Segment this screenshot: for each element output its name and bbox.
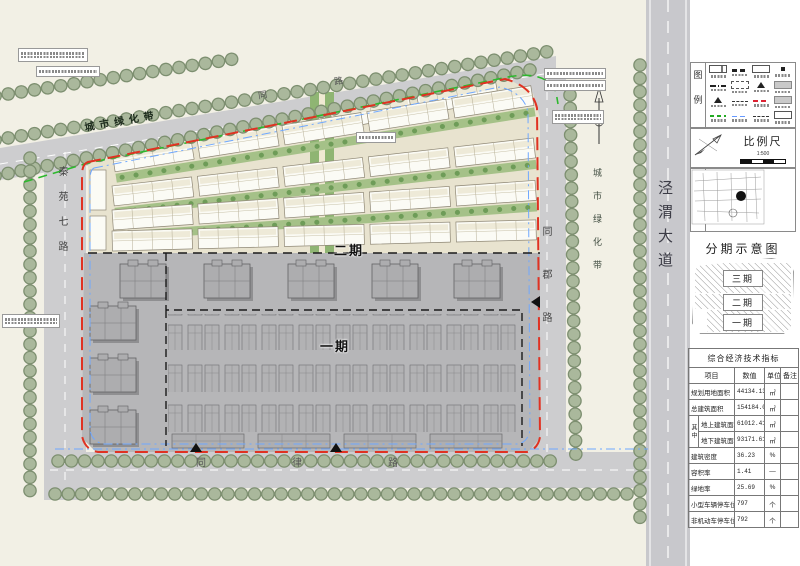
legend-symbol-outline-rect bbox=[751, 65, 772, 79]
table-row: 建筑密度 36.23 % bbox=[689, 448, 799, 464]
row-item: 绿地率 bbox=[689, 480, 735, 496]
group-label: 其中 bbox=[689, 416, 699, 448]
legend-symbol-dash-line2 bbox=[751, 111, 772, 125]
phasing-diagram: 三期 二期 一期 bbox=[692, 258, 794, 334]
annotation-note bbox=[544, 68, 606, 79]
jingwei-avenue-label: 泾渭大道 bbox=[656, 180, 671, 276]
row-item: 非机动车停车位 bbox=[689, 512, 735, 528]
scale-box: 比例尺 1:500 bbox=[690, 128, 796, 168]
legend-symbol-gate bbox=[708, 65, 729, 79]
indicators-table-wrap: 综合经济技术指标 项目 数值 单位 备注 规划用地面积 44134.13 ㎡ 总… bbox=[688, 348, 798, 528]
table-row: 其中 地上建筑面积 61012.41 ㎡ bbox=[689, 416, 799, 432]
row-value: 1.41 bbox=[735, 464, 765, 480]
col-header-value: 数值 bbox=[735, 368, 765, 384]
road-top-label-char2: 路 bbox=[333, 73, 344, 87]
row-note bbox=[781, 432, 799, 448]
row-item: 地上建筑面积 bbox=[699, 416, 735, 432]
row-item: 总建筑面积 bbox=[689, 400, 735, 416]
site-plan-page: 城市绿化带 同 路 秦苑七路 同郡路 同律路 城市绿化带 泾渭大道 二期 一期 … bbox=[0, 0, 800, 566]
row-value: 44134.13 bbox=[735, 384, 765, 400]
row-unit: ㎡ bbox=[765, 384, 781, 400]
indicators-table: 综合经济技术指标 项目 数值 单位 备注 规划用地面积 44134.13 ㎡ 总… bbox=[688, 348, 799, 528]
table-row: 容积率 1.41 — bbox=[689, 464, 799, 480]
row-note bbox=[781, 480, 799, 496]
phase1-label: 一期 bbox=[723, 314, 763, 331]
phase3-label: 三期 bbox=[723, 270, 763, 287]
legend-symbol-dot bbox=[773, 65, 794, 79]
row-unit: % bbox=[765, 448, 781, 464]
row-note bbox=[781, 464, 799, 480]
row-item: 建筑密度 bbox=[689, 448, 735, 464]
row-note bbox=[781, 416, 799, 432]
legend-symbol-entrance-triangle2 bbox=[708, 96, 729, 110]
table-row: 绿地率 25.69 % bbox=[689, 480, 799, 496]
row-unit: 个 bbox=[765, 512, 781, 528]
table-title: 综合经济技术指标 bbox=[689, 349, 799, 368]
row-unit: % bbox=[765, 480, 781, 496]
table-row: 非机动车停车位 792 个 bbox=[689, 512, 799, 528]
legend-box: 图例 bbox=[690, 62, 796, 128]
annotation-note bbox=[18, 48, 88, 62]
row-unit: ㎡ bbox=[765, 400, 781, 416]
road-right-label: 同郡路 bbox=[540, 226, 550, 355]
site-location-marker bbox=[736, 191, 746, 201]
row-value: 797 bbox=[735, 496, 765, 512]
legend-symbol-dash-line bbox=[730, 96, 751, 110]
annotation-note bbox=[2, 314, 60, 328]
row-note bbox=[781, 448, 799, 464]
row-value: 61012.41 bbox=[735, 416, 765, 432]
row-value: 36.23 bbox=[735, 448, 765, 464]
row-note bbox=[781, 512, 799, 528]
row-item: 小型车辆停车位 bbox=[689, 496, 735, 512]
row-unit: — bbox=[765, 464, 781, 480]
row-item: 规划用地面积 bbox=[689, 384, 735, 400]
row-unit: ㎡ bbox=[765, 416, 781, 432]
table-row: 总建筑面积 154184.02 ㎡ bbox=[689, 400, 799, 416]
scale-bar bbox=[740, 159, 786, 164]
road-left-label: 秦苑七路 bbox=[56, 166, 66, 266]
row-note bbox=[781, 496, 799, 512]
phase2-label: 二期 bbox=[723, 294, 763, 311]
legend-symbol-red-dash bbox=[751, 96, 772, 110]
legend-symbol-dashed-rect bbox=[730, 80, 751, 94]
row-note bbox=[781, 384, 799, 400]
row-value: 792 bbox=[735, 512, 765, 528]
legend-symbol-dash-dot bbox=[708, 80, 729, 94]
location-map bbox=[706, 169, 795, 231]
legend-symbol-gray-fill2 bbox=[773, 96, 794, 110]
legend-symbol-outline-rect2 bbox=[773, 111, 794, 125]
row-item: 容积率 bbox=[689, 464, 735, 480]
annotation-note bbox=[552, 110, 604, 124]
phasing-diagram-title: 分期示意图 bbox=[690, 240, 796, 257]
row-value: 93171.61 bbox=[735, 432, 765, 448]
annotation-note bbox=[544, 80, 606, 91]
scale-value: 1:500 bbox=[731, 151, 795, 157]
col-header-note: 备注 bbox=[781, 368, 799, 384]
row-value: 154184.02 bbox=[735, 400, 765, 416]
north-arrow-sketch-icon bbox=[691, 129, 731, 167]
row-item: 地下建筑面积 bbox=[699, 432, 735, 448]
row-unit: ㎡ bbox=[765, 432, 781, 448]
row-unit: 个 bbox=[765, 496, 781, 512]
legend-grid bbox=[706, 63, 795, 127]
table-row: 规划用地面积 44134.13 ㎡ bbox=[689, 384, 799, 400]
row-note bbox=[781, 400, 799, 416]
col-header-unit: 单位 bbox=[765, 368, 781, 384]
legend-symbol-entrance-triangle bbox=[751, 80, 772, 94]
legend-symbol-gray-fill bbox=[773, 80, 794, 94]
col-header-item: 项目 bbox=[689, 368, 735, 384]
legend-title: 图例 bbox=[691, 63, 706, 127]
row-value: 25.69 bbox=[735, 480, 765, 496]
road-bottom-label: 同律路 bbox=[196, 459, 484, 469]
location-box: 区位图 bbox=[690, 168, 796, 232]
legend-symbol-blue-dash bbox=[730, 111, 751, 125]
scale-title: 比例尺 bbox=[731, 133, 795, 149]
legend-symbol-green-dash bbox=[708, 111, 729, 125]
annotation-note bbox=[356, 132, 396, 143]
table-row: 地下建筑面积 93171.61 ㎡ bbox=[689, 432, 799, 448]
table-row: 小型车辆停车位 797 个 bbox=[689, 496, 799, 512]
phase1-zone-label: 一期 bbox=[320, 340, 350, 353]
phase2-zone-label: 二期 bbox=[334, 244, 364, 257]
legend-symbol-thick-dash bbox=[730, 65, 751, 79]
annotation-note bbox=[36, 66, 100, 77]
green-belt-right-label: 城市绿化带 bbox=[592, 168, 601, 283]
road-top-label-char1: 同 bbox=[257, 87, 268, 101]
